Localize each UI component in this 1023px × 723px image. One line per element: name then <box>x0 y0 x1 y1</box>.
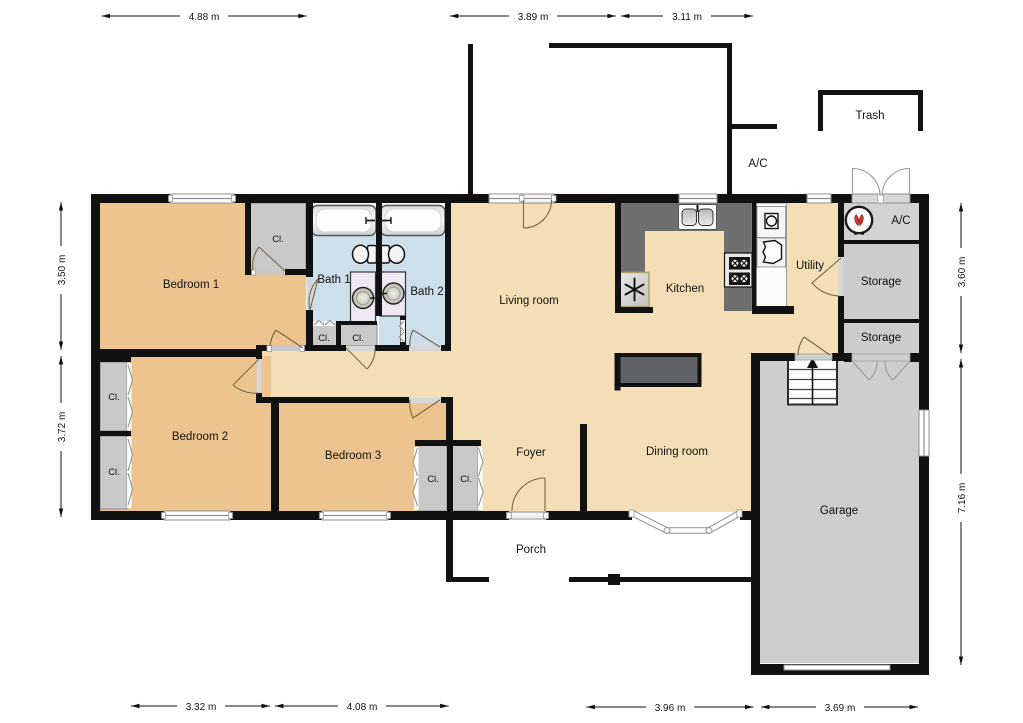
svg-text:Foyer: Foyer <box>516 447 546 459</box>
svg-text:3.60 m: 3.60 m <box>957 257 968 288</box>
svg-text:3.50 m: 3.50 m <box>57 255 68 286</box>
svg-text:Porch: Porch <box>516 544 546 556</box>
svg-text:4.88 m: 4.88 m <box>189 12 220 23</box>
svg-text:Living room: Living room <box>499 295 558 307</box>
svg-text:Dining room: Dining room <box>646 446 708 458</box>
svg-text:A/C: A/C <box>891 215 910 227</box>
svg-text:Bedroom 3: Bedroom 3 <box>325 450 381 462</box>
svg-text:Cl.: Cl. <box>108 392 120 403</box>
svg-text:Kitchen: Kitchen <box>666 283 704 295</box>
svg-text:Storage: Storage <box>861 332 901 344</box>
svg-text:Bath 1: Bath 1 <box>317 274 350 286</box>
svg-text:7.16 m: 7.16 m <box>957 483 968 514</box>
svg-text:3.32 m: 3.32 m <box>186 702 217 713</box>
svg-text:Cl.: Cl. <box>352 333 364 344</box>
svg-text:Bath 2: Bath 2 <box>410 286 443 298</box>
svg-text:Cl.: Cl. <box>427 474 439 485</box>
svg-text:Cl.: Cl. <box>318 333 330 344</box>
svg-text:3.11 m: 3.11 m <box>672 12 702 23</box>
svg-text:Cl.: Cl. <box>108 467 120 478</box>
svg-text:Cl.: Cl. <box>272 234 284 245</box>
svg-text:Bedroom 1: Bedroom 1 <box>163 279 219 291</box>
svg-text:Storage: Storage <box>861 276 901 288</box>
svg-text:Cl.: Cl. <box>460 474 472 485</box>
svg-text:3.72 m: 3.72 m <box>57 412 68 443</box>
svg-text:4.08 m: 4.08 m <box>347 702 378 713</box>
svg-text:3.89 m: 3.89 m <box>518 12 549 23</box>
svg-text:Bedroom 2: Bedroom 2 <box>172 431 228 443</box>
svg-text:Utility: Utility <box>796 260 824 272</box>
svg-text:A/C: A/C <box>748 158 767 170</box>
svg-text:Garage: Garage <box>820 505 858 517</box>
svg-text:3.96 m: 3.96 m <box>655 703 686 714</box>
svg-text:Trash: Trash <box>856 110 885 122</box>
svg-text:3.69 m: 3.69 m <box>825 703 856 714</box>
